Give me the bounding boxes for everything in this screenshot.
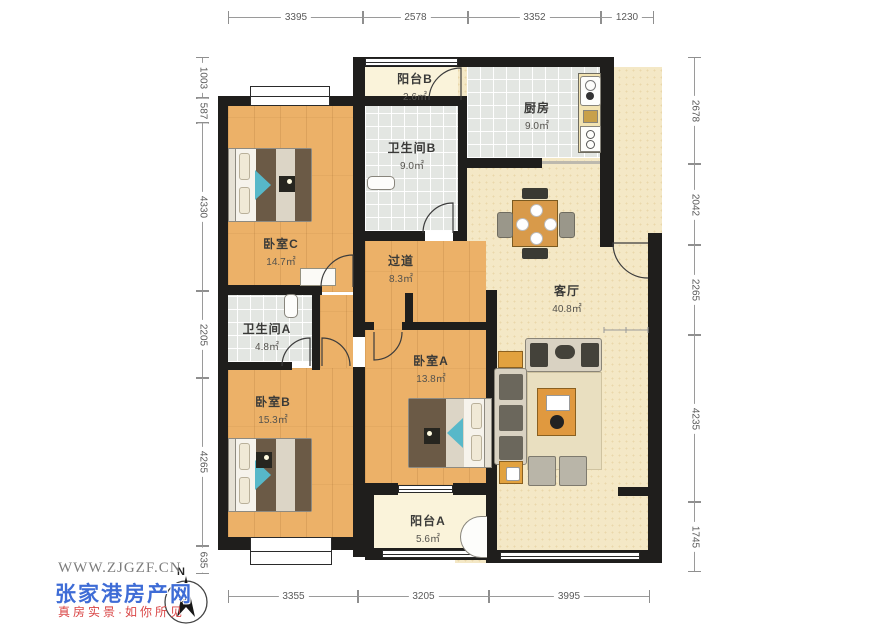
wall-living-right	[648, 233, 662, 563]
dim-top-3: 3352	[467, 11, 602, 24]
bay-window-bedroom-b	[250, 537, 332, 565]
dim-right-2: 2042	[688, 163, 701, 246]
dining-bench-bottom	[522, 248, 548, 259]
kitchen-pass-sill	[542, 161, 600, 164]
bed-a-pillow-1	[471, 403, 482, 429]
kitchen-sink	[580, 76, 601, 106]
dim-right-5: 1745	[688, 501, 701, 572]
bed-c-pillow-1	[239, 153, 250, 180]
window-balcony-b	[365, 58, 458, 66]
wall-bathroom-a-bottom	[218, 362, 292, 370]
dim-right-4: 4235	[688, 334, 701, 503]
bed-b-headboard	[228, 438, 236, 512]
bed-b-pillow-2	[239, 477, 250, 504]
wall-hall-stub	[405, 293, 413, 330]
dim-left-5: 4265	[196, 377, 209, 547]
wall-bedroom-a-top-left	[365, 322, 374, 330]
wall-living-stub	[618, 487, 648, 496]
dim-top-4: 1230	[600, 11, 654, 24]
dim-left-4: 2205	[196, 290, 209, 379]
kitchen-small-appliance	[583, 110, 598, 123]
dim-left-2: 587	[196, 97, 209, 124]
bathroom-a-toilet	[284, 294, 298, 318]
wall-bedroom-c-top-right	[326, 96, 467, 106]
side-table-bottom	[499, 461, 523, 484]
wall-bedroom-c-top-left	[218, 96, 254, 106]
coffee-table	[537, 388, 576, 436]
watermark-site: WWW.ZJGZF.CN	[58, 560, 182, 577]
dim-left-3: 4330	[196, 122, 209, 292]
wall-kitchen-right	[600, 57, 614, 247]
wall-main-vertical-lower	[353, 367, 365, 543]
wall-main-vertical-upper	[353, 106, 365, 337]
bay-window-bedroom-c	[250, 86, 330, 106]
watermark-slogan: 真房实景·如你所见	[58, 603, 185, 620]
bed-c-headboard	[228, 148, 236, 222]
bedroom-c-cabinet	[300, 268, 336, 286]
dim-left-1: 1003	[196, 57, 209, 99]
dim-left-6: 635	[196, 545, 209, 574]
bed-a-runner	[447, 418, 463, 448]
wall-bathroom-b-kitchen	[458, 100, 467, 239]
dim-bottom-3: 3995	[488, 590, 650, 603]
bed-c-tray	[279, 176, 295, 192]
floor-bathroom-b	[365, 106, 458, 231]
dim-top-2: 2578	[362, 11, 469, 24]
kitchen-stove	[580, 126, 601, 152]
floor-balcony-b	[365, 67, 458, 98]
bed-a-headboard	[484, 398, 492, 468]
wall-kitchen-bottom	[462, 158, 542, 168]
floorplan-canvas: N 阳台B 2.6㎡ 厨房 9.0㎡ 卫生间B 9.0㎡ 卧室C 14.7㎡ 过…	[0, 0, 880, 625]
dim-bottom-2: 3205	[357, 590, 490, 603]
sofa-left	[494, 368, 527, 465]
bed-c-pillow-2	[239, 187, 250, 214]
bed-b-pillow-1	[239, 443, 250, 470]
bed-b-tray	[256, 452, 272, 468]
dining-chair-right	[559, 212, 575, 238]
wall-balcony-a-top-left	[353, 483, 398, 495]
dining-bench-top	[522, 188, 548, 199]
dim-top-1: 3395	[228, 11, 364, 24]
wall-bathroom-b-bottom-left	[358, 231, 425, 241]
bed-a-pillow-2	[471, 435, 482, 461]
side-table-top	[498, 351, 523, 368]
dining-chair-left	[497, 212, 513, 238]
window-living-south	[500, 552, 640, 560]
bathroom-b-basin	[367, 176, 395, 190]
bed-a-tray	[424, 428, 440, 444]
sliding-door-bedroom-a-balcony	[398, 485, 453, 493]
wall-bedroom-c-bottom	[218, 285, 322, 295]
wall-exterior-left	[218, 96, 228, 550]
ottoman-2	[559, 456, 587, 486]
ottoman-1	[528, 456, 556, 486]
dim-right-1: 2678	[688, 57, 701, 165]
wall-bedroom-a-top-right	[402, 322, 497, 330]
bed-c-runner	[255, 170, 271, 200]
dim-bottom-1: 3355	[228, 590, 359, 603]
wall-bathroom-a-right	[312, 285, 320, 370]
floor-vestibule	[320, 295, 353, 370]
wall-bathroom-b-bottom-right	[453, 231, 467, 241]
bed-b-sheet	[276, 439, 295, 511]
dining-table	[512, 200, 558, 247]
floor-hallway	[365, 241, 486, 330]
sofa-top	[525, 338, 602, 372]
dim-right-3: 2265	[688, 244, 701, 336]
floor-bathroom-a	[224, 295, 312, 362]
wall-balcony-a-top-right	[453, 483, 497, 495]
